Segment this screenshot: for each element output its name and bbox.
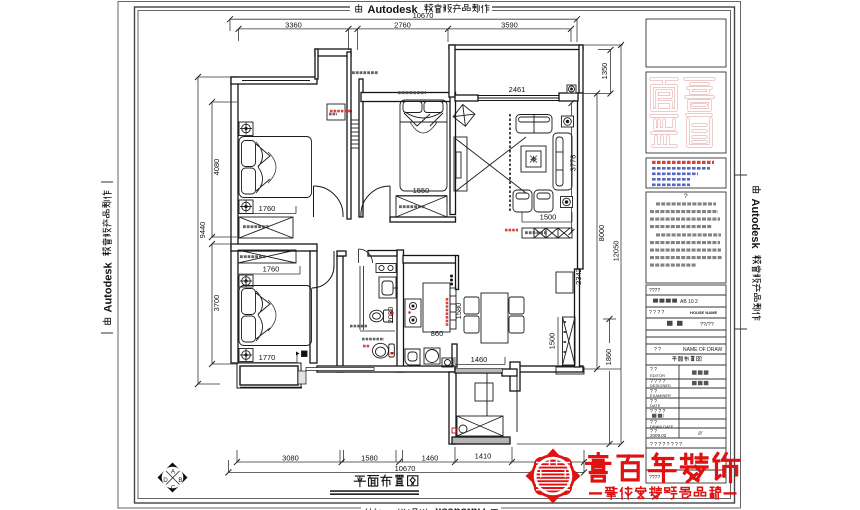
svg-text:?: ?: [684, 193, 688, 200]
svg-text:1350: 1350: [600, 63, 609, 80]
svg-text:? ? ? ?: ? ? ? ?: [649, 310, 665, 316]
svg-text:????: ????: [649, 288, 660, 294]
svg-text:1500: 1500: [548, 333, 557, 350]
svg-text:3590: 3590: [501, 20, 518, 29]
svg-text:? ? ? ? ? ? ? ?: ? ? ? ? ? ? ? ?: [650, 442, 682, 448]
svg-text:B: B: [178, 477, 182, 484]
svg-text:DESIGNED: DESIGNED: [650, 383, 671, 388]
svg-text:EDITOR: EDITOR: [650, 373, 665, 378]
svg-text:1580: 1580: [454, 303, 463, 320]
svg-text:HOUSE NAME: HOUSE NAME: [690, 310, 717, 315]
svg-text:8000: 8000: [597, 225, 606, 242]
svg-text:10670: 10670: [395, 464, 416, 473]
svg-text:1550: 1550: [413, 186, 430, 195]
svg-text:3778: 3778: [569, 155, 578, 172]
svg-text:1770: 1770: [259, 353, 276, 362]
svg-text:3080: 3080: [282, 454, 299, 463]
svg-text:2461: 2461: [509, 85, 526, 94]
svg-text:4080: 4080: [212, 159, 221, 176]
svg-text:1760: 1760: [263, 265, 280, 274]
svg-text:????: ????: [649, 475, 660, 481]
svg-text:2009.02: 2009.02: [650, 433, 667, 438]
svg-text:1460: 1460: [471, 355, 488, 364]
svg-text:??/??: ??/??: [700, 322, 714, 328]
svg-text:EXAMINER: EXAMINER: [650, 393, 671, 398]
svg-text:1500: 1500: [540, 213, 557, 222]
svg-text:2080: 2080: [386, 307, 395, 324]
svg-text:3360: 3360: [285, 20, 302, 29]
svg-text:? ?: ? ?: [654, 347, 661, 353]
svg-text:860: 860: [431, 329, 444, 338]
svg-text:///: ///: [697, 431, 703, 437]
svg-text:1580: 1580: [361, 454, 378, 463]
svg-text:1410: 1410: [475, 452, 492, 461]
svg-text:AB 10 2: AB 10 2: [680, 299, 698, 305]
svg-text:10670: 10670: [413, 11, 434, 20]
svg-text:1460: 1460: [422, 454, 439, 463]
svg-text:NAME OF DRAW: NAME OF DRAW: [683, 347, 723, 353]
svg-text:2342: 2342: [574, 268, 583, 285]
svg-text:9440: 9440: [198, 222, 207, 239]
svg-text:C: C: [171, 485, 176, 492]
svg-text:1860: 1860: [604, 349, 613, 366]
svg-text:DATE: DATE: [650, 403, 661, 408]
svg-text:12050: 12050: [612, 241, 621, 262]
svg-text:1760: 1760: [259, 204, 276, 213]
svg-text:3700: 3700: [212, 295, 221, 312]
svg-text:2760: 2760: [394, 20, 411, 29]
